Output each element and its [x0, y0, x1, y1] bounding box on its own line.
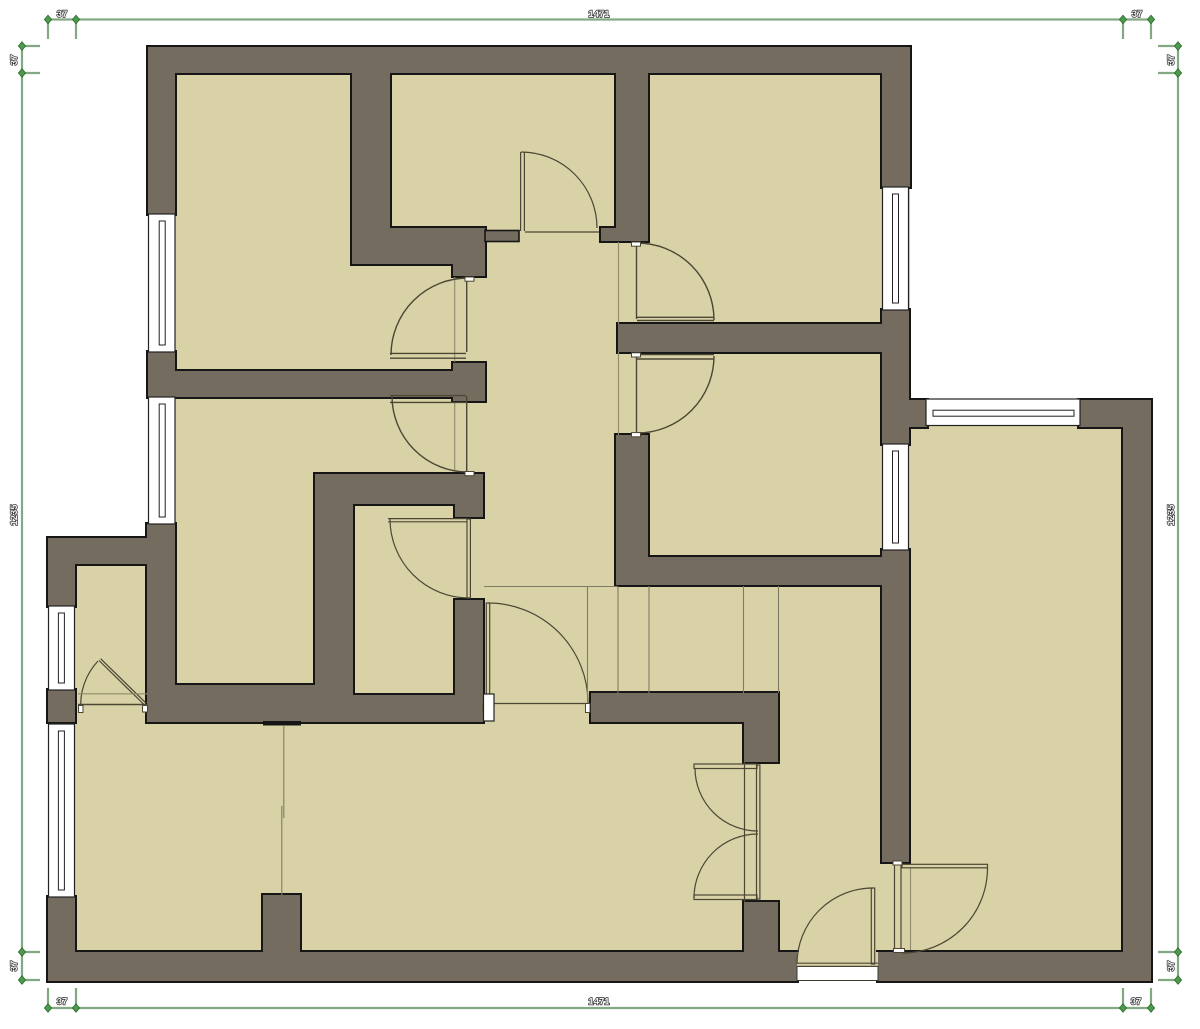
svg-text:1471: 1471 [588, 997, 610, 1008]
svg-text:37: 37 [1132, 9, 1143, 20]
svg-text:37: 37 [9, 55, 20, 66]
svg-text:37: 37 [1131, 997, 1142, 1008]
svg-text:1235: 1235 [9, 504, 20, 526]
svg-text:37: 37 [9, 961, 20, 972]
svg-text:1471: 1471 [588, 9, 610, 20]
svg-text:37: 37 [1166, 961, 1177, 972]
svg-text:1235: 1235 [1166, 504, 1177, 526]
svg-text:37: 37 [57, 9, 68, 20]
svg-text:37: 37 [1166, 55, 1177, 66]
svg-text:37: 37 [57, 997, 68, 1008]
